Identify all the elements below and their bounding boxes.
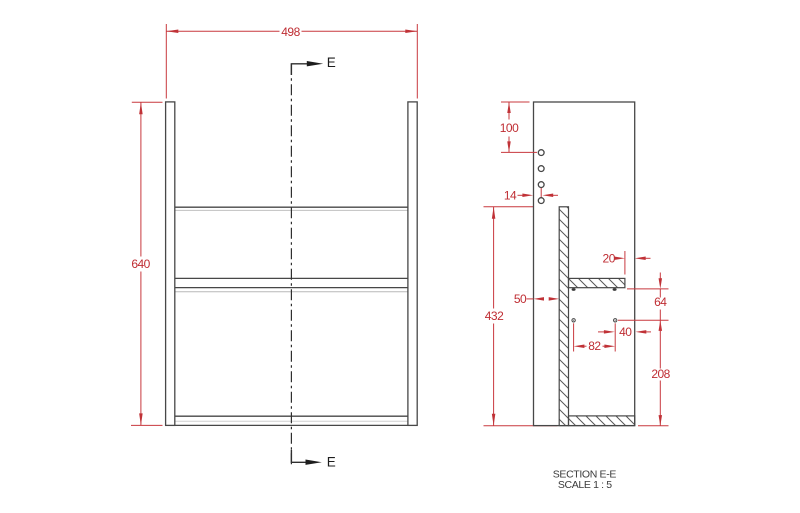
svg-text:64: 64 xyxy=(654,295,667,309)
svg-text:E: E xyxy=(327,55,336,70)
svg-text:432: 432 xyxy=(485,309,504,323)
svg-text:50: 50 xyxy=(514,292,527,306)
svg-text:82: 82 xyxy=(588,339,601,353)
svg-text:14: 14 xyxy=(504,188,517,202)
svg-text:640: 640 xyxy=(131,257,150,271)
svg-text:E: E xyxy=(327,454,336,469)
svg-text:208: 208 xyxy=(651,367,670,381)
svg-text:100: 100 xyxy=(500,121,519,135)
svg-text:40: 40 xyxy=(619,325,632,339)
svg-text:498: 498 xyxy=(281,25,300,39)
svg-text:SCALE 1 : 5: SCALE 1 : 5 xyxy=(558,479,612,491)
svg-text:20: 20 xyxy=(603,251,616,265)
